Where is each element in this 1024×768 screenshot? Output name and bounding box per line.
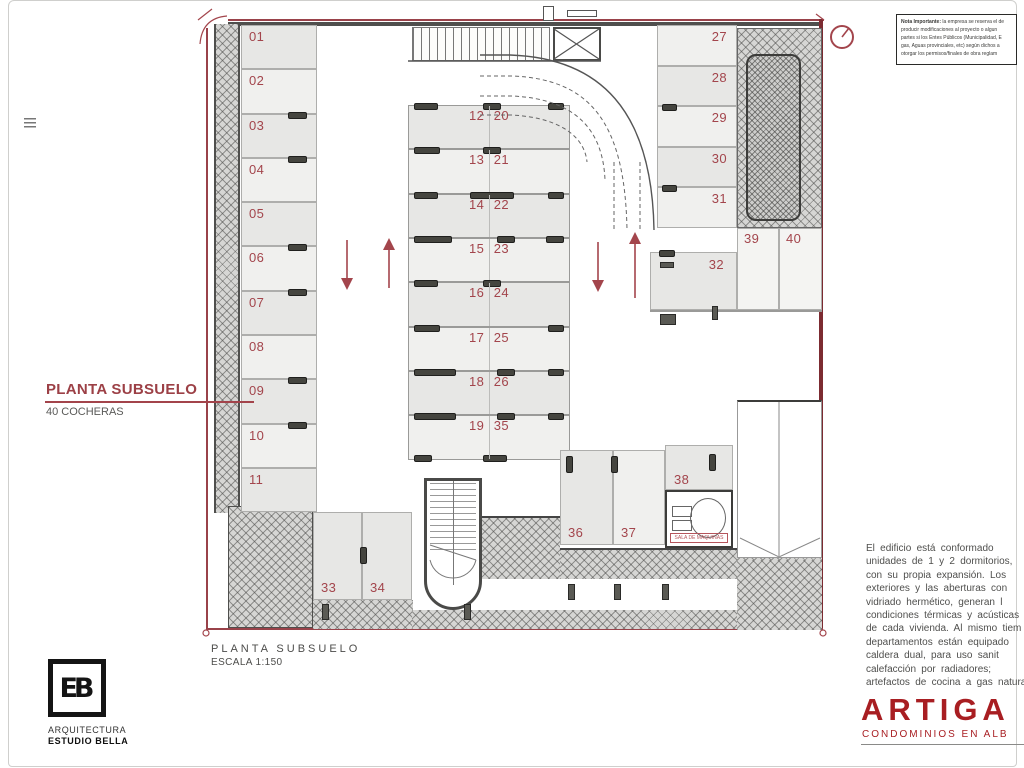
parking-stall-10: 10 — [241, 424, 317, 468]
floor-plan-sheet: 01 02 03 04 05 06 07 08 09 10 11 1220 13… — [0, 0, 1024, 768]
stall-number: 16 — [469, 285, 484, 300]
stall-number: 19 — [469, 418, 484, 433]
studio-name-line1: ARQUITECTURA — [48, 725, 126, 735]
caption-scale: ESCALA 1:150 — [211, 657, 283, 668]
parking-row-12-20: 1220 — [408, 105, 570, 149]
stairs-top — [412, 27, 550, 61]
studio-logo: EB — [48, 659, 106, 717]
parking-stall-05: 05 — [241, 202, 317, 246]
parking-stall-36: 36 — [560, 450, 613, 545]
sheet-margin-mark — [24, 118, 36, 128]
wheel-stop — [414, 103, 438, 110]
brand-divider — [861, 744, 1024, 745]
wheel-stop — [414, 147, 440, 154]
plan-title-underline — [45, 401, 254, 403]
note-line: la empresa se reserva el de — [942, 19, 1004, 25]
column-mark — [614, 584, 621, 600]
stall-number: 10 — [249, 428, 264, 443]
equipment-icon — [672, 506, 692, 517]
parking-stall-34: 34 — [362, 512, 412, 600]
parking-stall-30: 30 — [657, 147, 737, 187]
stall-number: 28 — [712, 70, 727, 85]
boundary-line-left — [206, 28, 208, 628]
stall-number: 37 — [621, 525, 636, 540]
wheel-stop — [288, 377, 307, 384]
stair-center-wall — [453, 481, 454, 585]
wheel-stop — [414, 455, 432, 462]
stall-number: 15 — [469, 241, 484, 256]
note-line: producir modificaciones al proyecto o al… — [901, 26, 1012, 34]
description-line: unidades de 1 y 2 dormitorios, — [866, 555, 1024, 568]
stall-number: 17 — [469, 330, 484, 345]
parking-row-15-23: 1523 — [408, 238, 570, 282]
studio-monogram: EB — [59, 673, 94, 704]
column-mark — [662, 584, 669, 600]
wheel-stop — [360, 547, 367, 564]
stall-number: 09 — [249, 383, 264, 398]
brand-logo-text: ARTIGA — [861, 692, 1024, 728]
parking-stall-08: 08 — [241, 335, 317, 379]
note-line: partes si los Entes Públicos (Municipali… — [901, 34, 1012, 42]
parking-row-17-25: 1725 — [408, 327, 570, 371]
stall-number: 02 — [249, 73, 264, 88]
stall-number: 31 — [712, 191, 727, 206]
column-mark — [568, 584, 575, 600]
parking-stall-39: 39 — [737, 228, 779, 310]
stall-number: 05 — [249, 206, 264, 221]
parking-stall-31: 31 — [657, 187, 737, 228]
wheel-stop — [414, 369, 456, 376]
wall-line-under-32 — [650, 310, 822, 312]
wheel-stop — [611, 456, 618, 473]
column-mark — [712, 306, 718, 320]
description-line: departamentos están equipado — [866, 636, 1024, 649]
water-tank-icon — [690, 498, 726, 538]
wall-left-hatched — [214, 24, 240, 513]
description-line: vidriado hermético, generan l — [866, 596, 1024, 609]
stall-number: 30 — [712, 151, 727, 166]
column-mark — [660, 314, 676, 325]
wheel-stop — [288, 244, 307, 251]
parking-row-18-26: 1826 — [408, 371, 570, 415]
important-note-box: Nota Importante: la empresa se reserva e… — [896, 14, 1017, 65]
stall-number: 38 — [674, 472, 689, 487]
parking-stall-33: 33 — [313, 512, 362, 600]
stall-number: 35 — [494, 418, 509, 433]
wheel-stop — [497, 413, 515, 420]
stall-number: 20 — [494, 108, 509, 123]
description-line: calefacción por radiadores; — [866, 663, 1024, 676]
description-line: artefactos de cocina a gas natura — [866, 676, 1024, 689]
building-description: El edificio está conformado unidades de … — [866, 542, 1024, 689]
stall-number: 33 — [321, 580, 336, 595]
parking-row-16-24: 1624 — [408, 282, 570, 327]
parking-stall-07: 07 — [241, 291, 317, 335]
stall-number: 34 — [370, 580, 385, 595]
description-line: caldera dual, para uso sanit — [866, 649, 1024, 662]
north-indicator-icon — [829, 23, 857, 51]
stall-number: 27 — [712, 29, 727, 44]
description-line: exteriores y las aberturas con — [866, 582, 1024, 595]
wheel-stop — [659, 250, 675, 257]
stall-number: 39 — [744, 231, 759, 246]
wheel-stop — [546, 236, 564, 243]
garage-gate-bay — [737, 400, 822, 558]
stall-number: 04 — [249, 162, 264, 177]
wheel-stop — [483, 455, 507, 462]
stall-number: 29 — [712, 110, 727, 125]
parking-stall-03: 03 — [241, 114, 317, 158]
stall-number: 11 — [249, 472, 263, 487]
stall-number: 24 — [494, 285, 509, 300]
parking-row-14-22: 1422 — [408, 194, 570, 238]
note-line: gas, Aguas provinciales, etc) según dich… — [901, 42, 1012, 50]
wheel-stop — [288, 156, 307, 163]
wheel-stop — [288, 289, 307, 296]
plan-subtitle: 40 COCHERAS — [46, 406, 124, 418]
wheel-stop — [548, 413, 564, 420]
wheel-stop — [483, 103, 501, 110]
note-title: Nota Importante: — [901, 19, 941, 25]
parking-stall-11: 11 — [241, 468, 317, 512]
wheel-stop — [497, 369, 515, 376]
parking-stall-04: 04 — [241, 158, 317, 202]
stall-number: 01 — [249, 29, 264, 44]
stall-number: 25 — [494, 330, 509, 345]
wheel-stop — [548, 192, 564, 199]
hatch-block-center — [480, 516, 560, 579]
parking-stall-28: 28 — [657, 66, 737, 106]
wheel-stop — [662, 185, 677, 192]
column-mark — [322, 604, 329, 620]
parking-stall-27: 27 — [657, 25, 737, 66]
parking-stall-37: 37 — [613, 450, 665, 545]
wheel-stop — [548, 103, 564, 110]
stall-number: 14 — [469, 197, 484, 212]
wheel-stop — [548, 369, 564, 376]
stall-number: 06 — [249, 250, 264, 265]
equipment-icon — [672, 520, 692, 531]
column-mark — [464, 604, 471, 620]
parking-stall-01: 01 — [241, 25, 317, 69]
stall-number: 23 — [494, 241, 509, 256]
wheel-stop — [566, 456, 573, 473]
wheel-stop — [288, 422, 307, 429]
parking-stall-40: 40 — [779, 228, 822, 310]
parking-stall-06: 06 — [241, 246, 317, 291]
stall-number: 03 — [249, 118, 264, 133]
parking-row-13-21: 1321 — [408, 149, 570, 194]
description-line: condiciones térmicas y acústicas — [866, 609, 1024, 622]
wheel-stop — [483, 280, 501, 287]
stall-number: 07 — [249, 295, 264, 310]
elevator-shaft — [553, 27, 601, 61]
stall-number: 13 — [469, 152, 484, 167]
description-line: El edificio está conformado — [866, 542, 1024, 555]
parking-stall-02: 02 — [241, 69, 317, 114]
stall-number: 26 — [494, 374, 509, 389]
machine-room-label: SALA DE MAQUINAS — [670, 533, 728, 543]
stall-number: 40 — [786, 231, 801, 246]
plan-title: PLANTA SUBSUELO — [46, 381, 197, 398]
parking-row-19-35: 1935 — [408, 415, 570, 460]
stall-number: 21 — [494, 152, 509, 167]
parking-stall-29: 29 — [657, 106, 737, 147]
stall-number: 08 — [249, 339, 264, 354]
hatch-block-bottom-left — [228, 506, 313, 628]
stall-number: 32 — [709, 257, 724, 272]
stall-number: 12 — [469, 108, 484, 123]
ramp-island — [746, 54, 801, 221]
wheel-stop — [414, 192, 438, 199]
wheel-stop — [414, 236, 452, 243]
description-line: de cada vivienda. Al mismo tiem — [866, 622, 1024, 635]
studio-name-line2: ESTUDIO BELLA — [48, 736, 128, 746]
wheel-stop — [709, 454, 716, 471]
machine-room: SALA DE MAQUINAS — [665, 490, 733, 548]
wheel-stop — [548, 325, 564, 332]
stairs-bottom — [424, 478, 482, 610]
wheel-stop — [288, 112, 307, 119]
wheel-stop — [414, 413, 456, 420]
boundary-line-top — [228, 19, 824, 21]
stall-number: 22 — [494, 197, 509, 212]
hatch-block-bottom-right — [737, 560, 822, 630]
description-line: con su propia expansión. Los — [866, 569, 1024, 582]
wheel-stop — [414, 325, 440, 332]
wheel-stop — [497, 236, 515, 243]
vent-box — [543, 6, 554, 21]
parking-stall-38: 38 — [665, 445, 733, 490]
vent-box — [567, 10, 597, 17]
stall-number: 36 — [568, 525, 583, 540]
column-mark — [660, 262, 674, 268]
stall-number: 18 — [469, 374, 484, 389]
wheel-stop — [470, 192, 514, 199]
caption-title: PLANTA SUBSUELO — [211, 643, 360, 655]
wheel-stop — [414, 280, 438, 287]
parking-stall-32: 32 — [650, 252, 737, 310]
brand-tagline: CONDOMINIOS EN ALB — [862, 729, 1024, 740]
wheel-stop — [662, 104, 677, 111]
wheel-stop — [483, 147, 501, 154]
note-line: otorgar los permisos/finales de obra reg… — [901, 50, 1012, 58]
